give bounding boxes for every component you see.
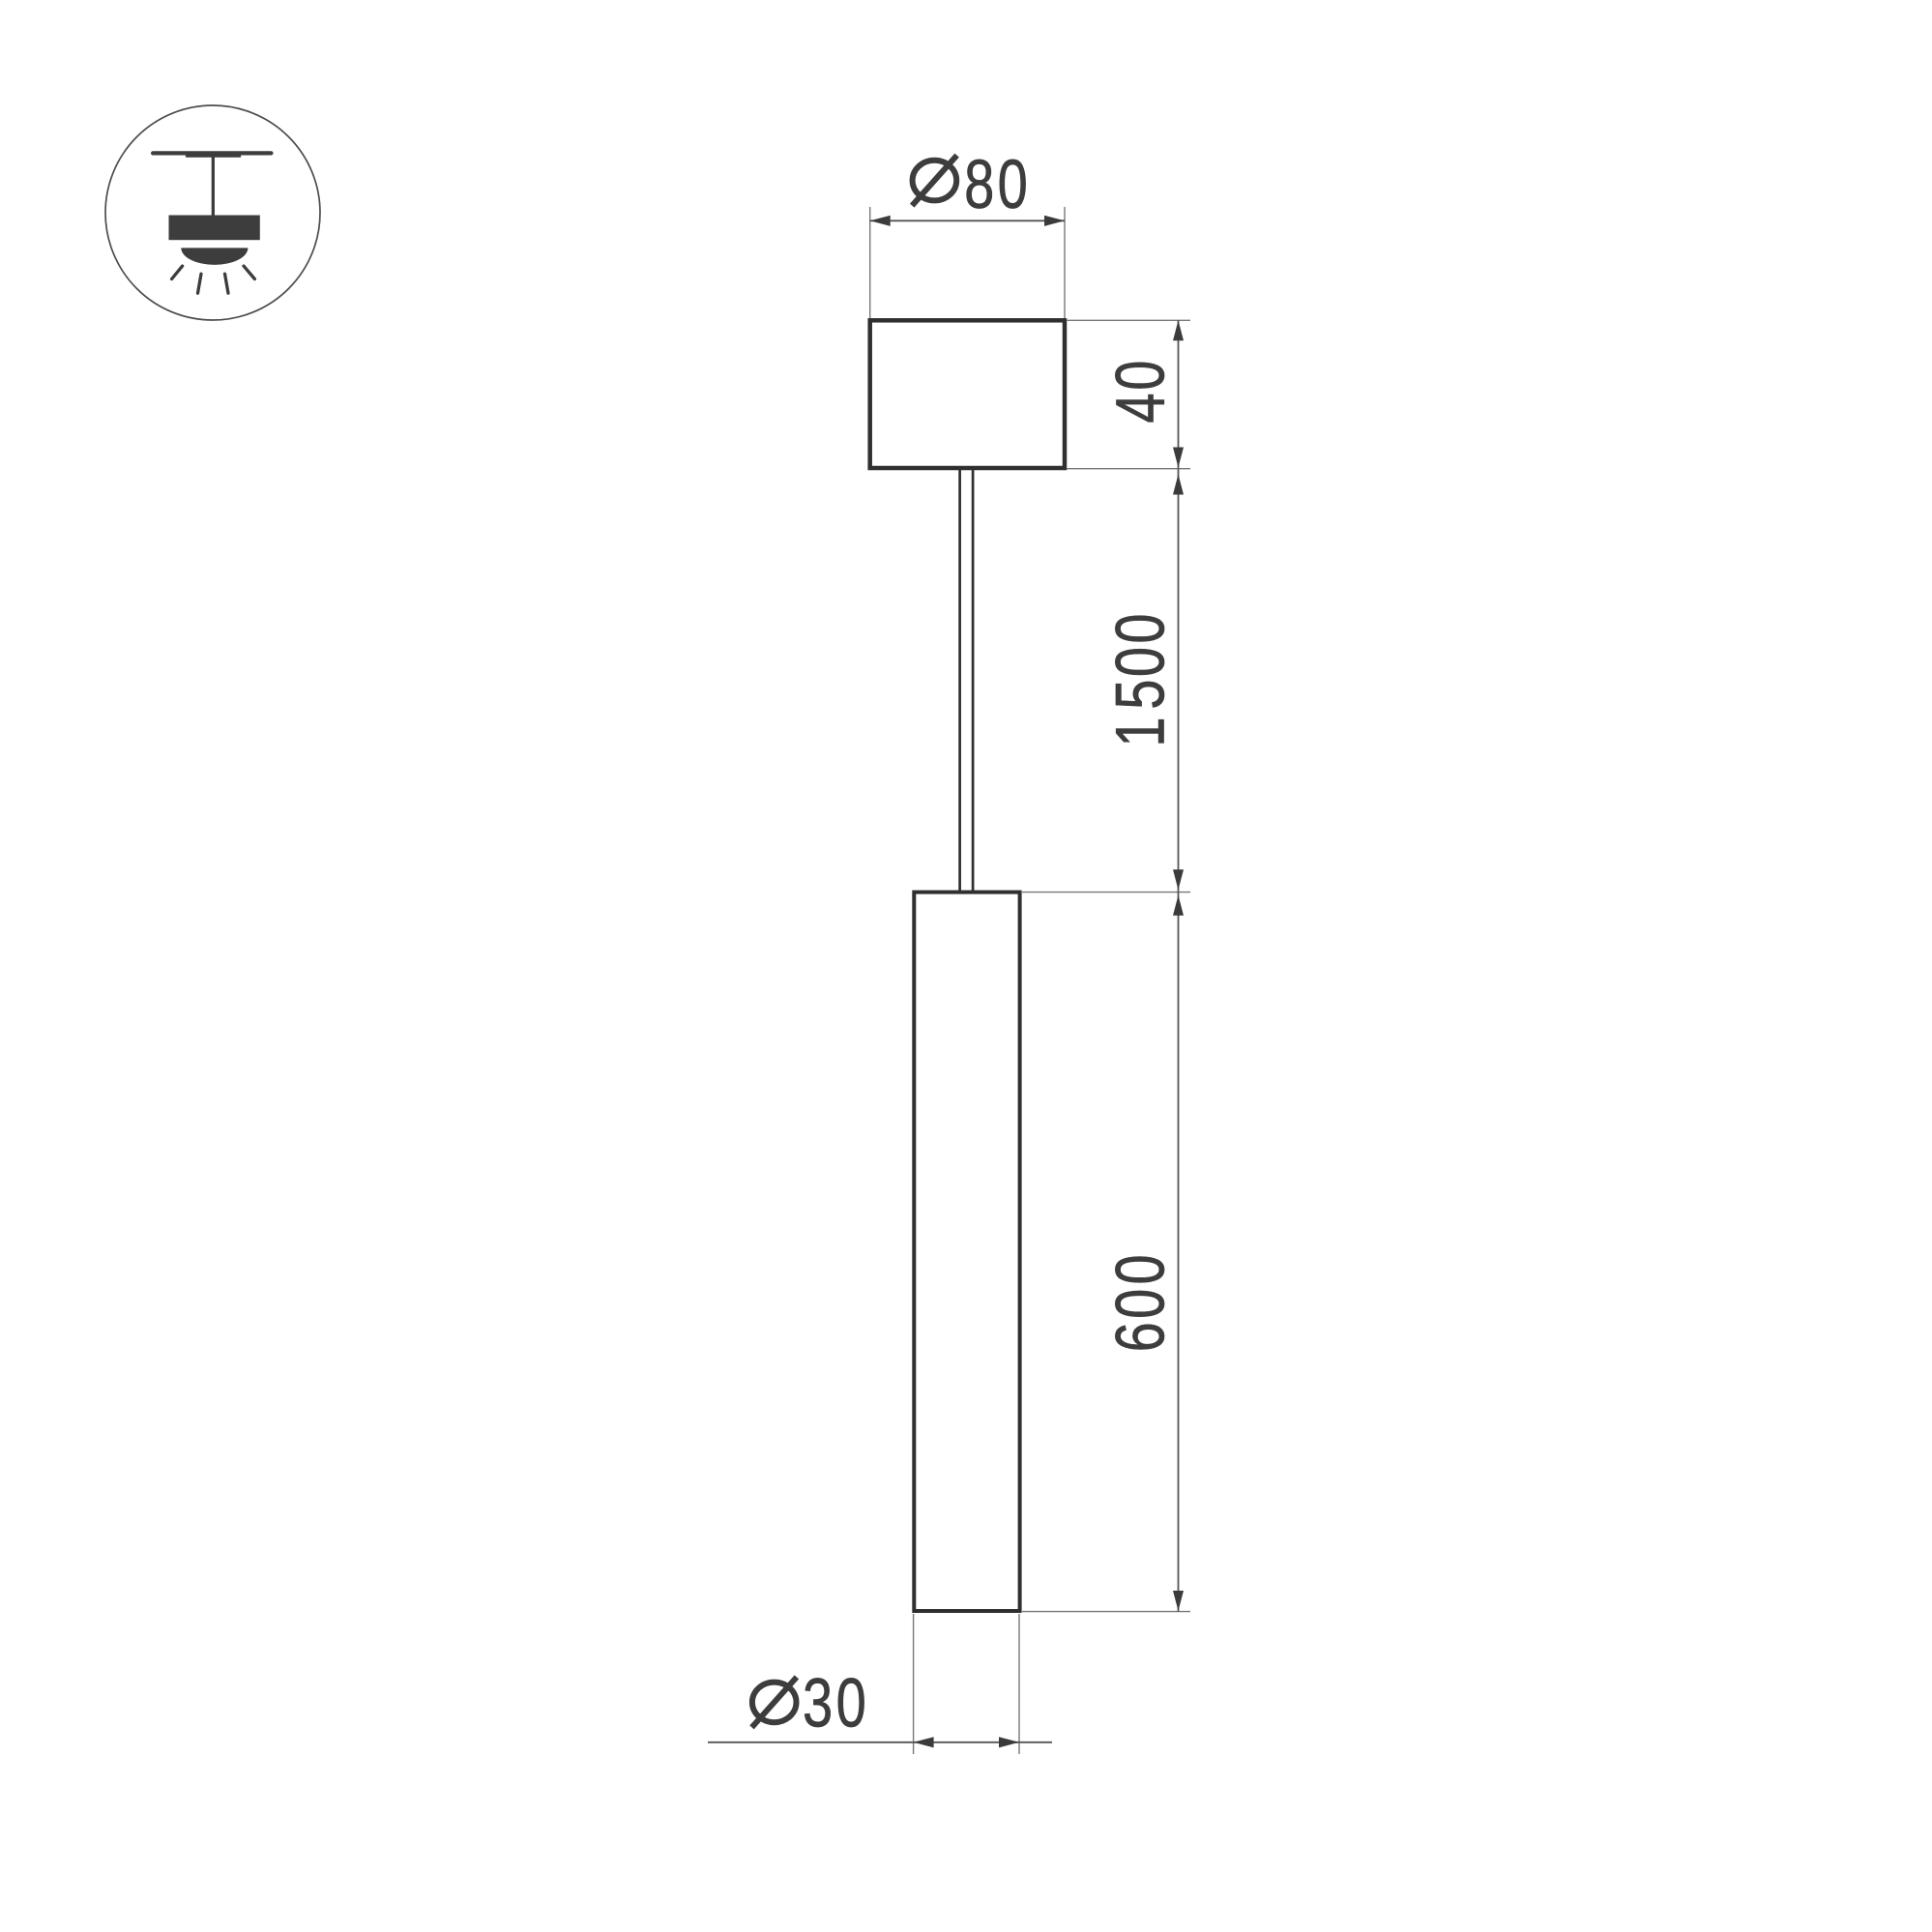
svg-text:6: 6 bbox=[1101, 1322, 1179, 1352]
svg-text:4: 4 bbox=[1101, 393, 1179, 423]
svg-text:0: 0 bbox=[1101, 647, 1179, 677]
svg-text:5: 5 bbox=[1101, 680, 1179, 710]
svg-text:8: 8 bbox=[964, 145, 994, 222]
svg-text:1: 1 bbox=[1101, 717, 1179, 746]
svg-text:0: 0 bbox=[1101, 613, 1179, 643]
svg-text:0: 0 bbox=[1101, 1289, 1179, 1319]
svg-text:0: 0 bbox=[998, 145, 1028, 222]
svg-text:0: 0 bbox=[1101, 361, 1179, 391]
svg-text:3: 3 bbox=[803, 1664, 833, 1742]
svg-text:0: 0 bbox=[836, 1664, 866, 1742]
svg-text:0: 0 bbox=[1101, 1254, 1179, 1284]
